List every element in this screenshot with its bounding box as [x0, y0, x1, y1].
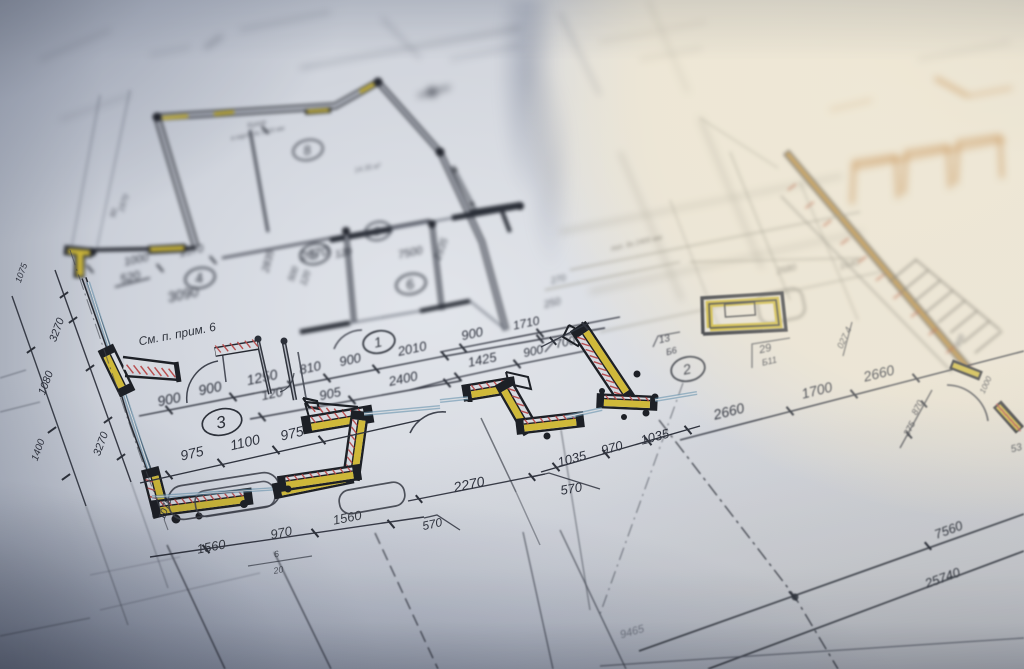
svg-text:970: 970: [269, 523, 294, 542]
svg-text:970: 970: [599, 437, 625, 457]
svg-text:570: 570: [559, 479, 584, 498]
svg-text:1035: 1035: [639, 425, 672, 447]
svg-text:975: 975: [279, 423, 306, 444]
svg-text:20: 20: [272, 564, 285, 576]
svg-text:1035: 1035: [556, 447, 589, 469]
svg-text:570: 570: [421, 515, 444, 533]
svg-text:3270: 3270: [91, 430, 111, 458]
svg-text:975: 975: [179, 443, 206, 464]
svg-text:1075: 1075: [13, 261, 30, 284]
svg-text:6: 6: [273, 549, 280, 560]
svg-text:2270: 2270: [451, 473, 486, 495]
svg-text:1400: 1400: [30, 437, 48, 462]
svg-text:3: 3: [214, 412, 228, 433]
svg-text:1560: 1560: [332, 507, 364, 527]
svg-text:1100: 1100: [228, 431, 261, 453]
svg-text:3270: 3270: [47, 316, 67, 344]
svg-text:См. п. прим. 6: См. п. прим. 6: [137, 320, 217, 349]
svg-text:1560: 1560: [196, 536, 228, 556]
